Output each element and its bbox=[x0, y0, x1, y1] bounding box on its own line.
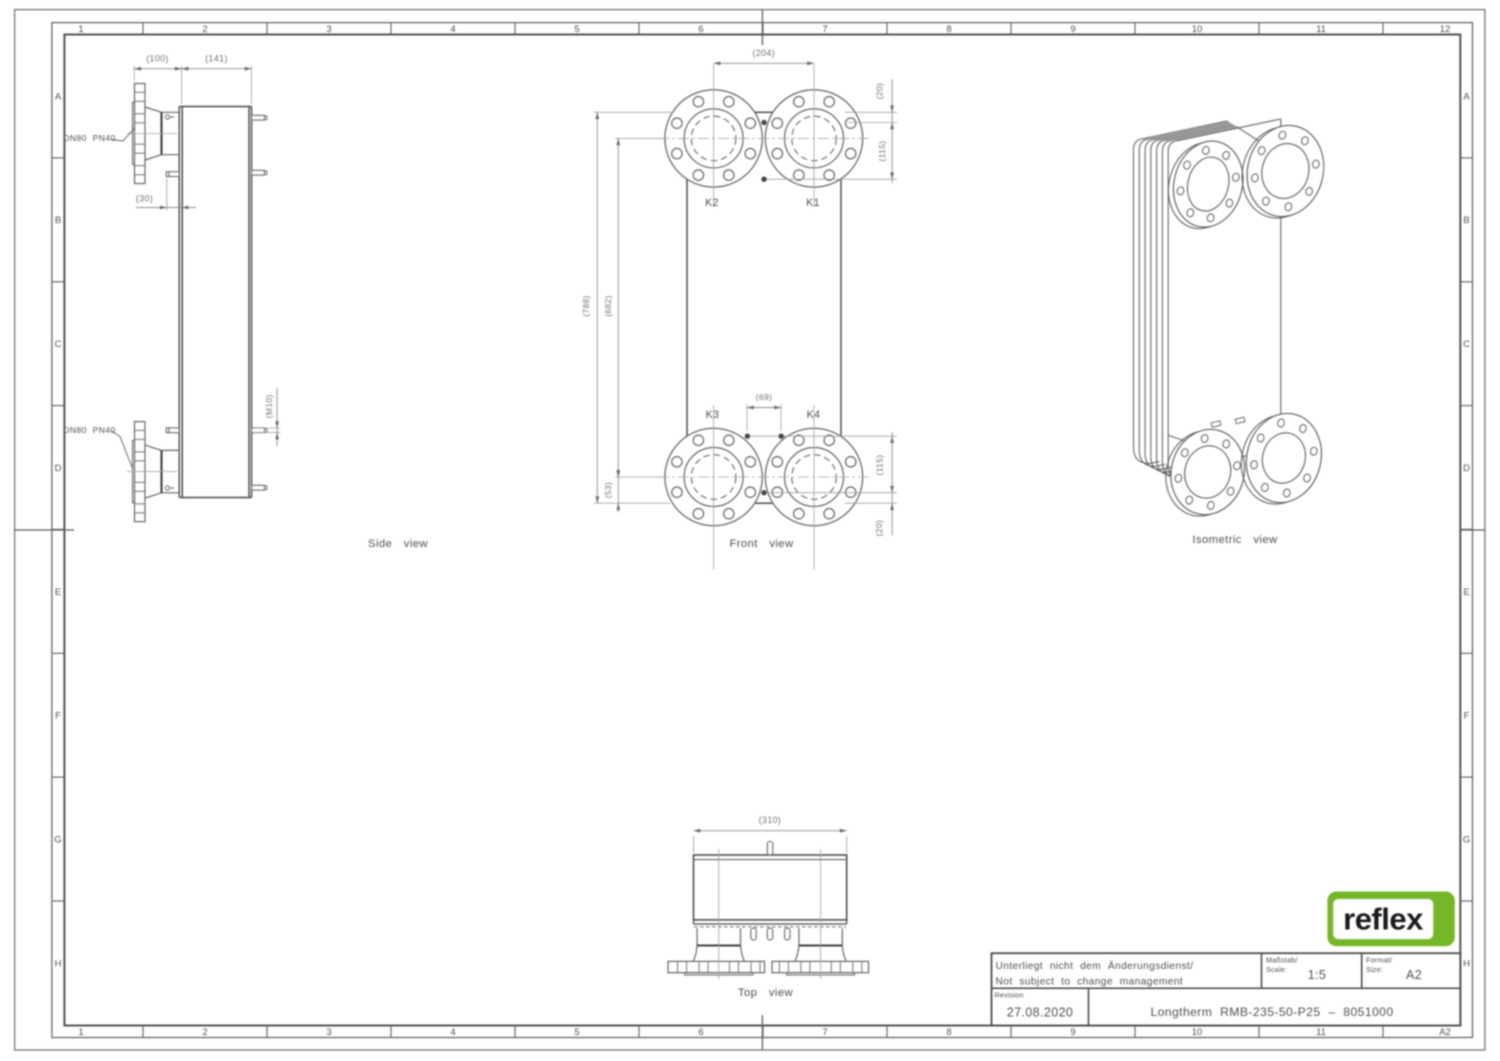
svg-text:(788): (788) bbox=[581, 295, 591, 317]
svg-text:Top view: Top view bbox=[738, 987, 794, 999]
svg-text:7: 7 bbox=[822, 24, 827, 35]
svg-text:Longtherm RMB-235-50-P25 – 805: Longtherm RMB-235-50-P25 – 8051000 bbox=[1150, 1005, 1393, 1019]
svg-text:Size:: Size: bbox=[1366, 965, 1383, 974]
svg-text:F: F bbox=[55, 711, 61, 722]
svg-text:5: 5 bbox=[574, 24, 579, 35]
svg-text:9: 9 bbox=[1070, 1027, 1075, 1038]
svg-text:11: 11 bbox=[1316, 1027, 1326, 1038]
svg-text:E: E bbox=[55, 587, 61, 598]
svg-text:K2: K2 bbox=[705, 197, 719, 209]
svg-text:4: 4 bbox=[450, 24, 455, 35]
svg-text:2: 2 bbox=[202, 24, 207, 35]
svg-text:1: 1 bbox=[78, 1027, 83, 1038]
svg-text:(M10): (M10) bbox=[264, 394, 274, 418]
svg-text:C: C bbox=[55, 339, 62, 350]
svg-text:Side view: Side view bbox=[368, 538, 428, 550]
svg-text:2: 2 bbox=[202, 1027, 207, 1038]
svg-text:Format/: Format/ bbox=[1366, 956, 1392, 965]
svg-text:E: E bbox=[1463, 587, 1469, 598]
svg-text:12: 12 bbox=[1440, 24, 1451, 35]
svg-text:10: 10 bbox=[1192, 1027, 1203, 1038]
svg-text:A: A bbox=[55, 91, 62, 102]
svg-text:3: 3 bbox=[326, 1027, 331, 1038]
svg-text:C: C bbox=[1463, 339, 1470, 350]
svg-text:Not subject to change manageme: Not subject to change management bbox=[996, 977, 1184, 988]
svg-text:(69): (69) bbox=[756, 392, 773, 402]
svg-text:A: A bbox=[1463, 91, 1470, 102]
svg-text:27.08.2020: 27.08.2020 bbox=[1007, 1006, 1074, 1020]
svg-text:H: H bbox=[55, 958, 62, 969]
svg-text:Unterliegt nicht dem Änderungs: Unterliegt nicht dem Änderungsdienst/ bbox=[996, 960, 1194, 972]
svg-text:K1: K1 bbox=[806, 197, 820, 209]
svg-text:A2: A2 bbox=[1439, 1027, 1451, 1038]
svg-text:Revision: Revision bbox=[995, 991, 1024, 1000]
svg-text:(204): (204) bbox=[753, 48, 776, 58]
svg-text:(682): (682) bbox=[603, 295, 613, 317]
svg-text:D: D bbox=[55, 463, 62, 474]
svg-text:1:5: 1:5 bbox=[1308, 968, 1327, 982]
svg-text:G: G bbox=[54, 835, 61, 846]
svg-text:(310): (310) bbox=[759, 815, 782, 825]
svg-text:Isometric view: Isometric view bbox=[1192, 534, 1278, 546]
svg-text:6: 6 bbox=[698, 24, 703, 35]
svg-text:10: 10 bbox=[1192, 24, 1203, 35]
svg-text:1: 1 bbox=[78, 24, 83, 35]
svg-text:(115): (115) bbox=[875, 455, 885, 476]
svg-text:F: F bbox=[1464, 711, 1470, 722]
svg-text:4: 4 bbox=[450, 1027, 455, 1038]
svg-text:Maßstab/: Maßstab/ bbox=[1266, 956, 1298, 965]
svg-text:H: H bbox=[1463, 958, 1470, 969]
svg-text:DN80 PN40: DN80 PN40 bbox=[63, 133, 115, 143]
svg-text:7: 7 bbox=[822, 1027, 827, 1038]
svg-text:G: G bbox=[1463, 835, 1470, 846]
svg-text:Scale:: Scale: bbox=[1266, 965, 1287, 974]
svg-text:6: 6 bbox=[698, 1027, 703, 1038]
svg-text:B: B bbox=[55, 215, 61, 226]
svg-text:3: 3 bbox=[326, 24, 331, 35]
svg-text:8: 8 bbox=[946, 1027, 951, 1038]
svg-text:K4: K4 bbox=[807, 409, 821, 421]
svg-text:5: 5 bbox=[574, 1027, 579, 1038]
svg-text:11: 11 bbox=[1316, 24, 1326, 35]
svg-text:(30): (30) bbox=[136, 194, 153, 204]
svg-text:9: 9 bbox=[1070, 24, 1075, 35]
svg-text:K3: K3 bbox=[706, 409, 720, 421]
svg-text:DN80 PN40: DN80 PN40 bbox=[63, 425, 115, 435]
svg-text:(20): (20) bbox=[874, 520, 884, 537]
svg-text:D: D bbox=[1463, 463, 1470, 474]
svg-text:reflex: reflex bbox=[1343, 902, 1424, 937]
svg-text:(20): (20) bbox=[874, 83, 884, 100]
svg-text:8: 8 bbox=[946, 24, 951, 35]
svg-text:(141): (141) bbox=[205, 54, 228, 64]
svg-text:Front view: Front view bbox=[729, 538, 794, 550]
svg-text:(115): (115) bbox=[877, 141, 887, 162]
svg-text:A2: A2 bbox=[1406, 968, 1422, 982]
svg-text:(100): (100) bbox=[146, 54, 169, 64]
svg-text:B: B bbox=[1463, 215, 1469, 226]
svg-text:(53): (53) bbox=[603, 482, 613, 499]
